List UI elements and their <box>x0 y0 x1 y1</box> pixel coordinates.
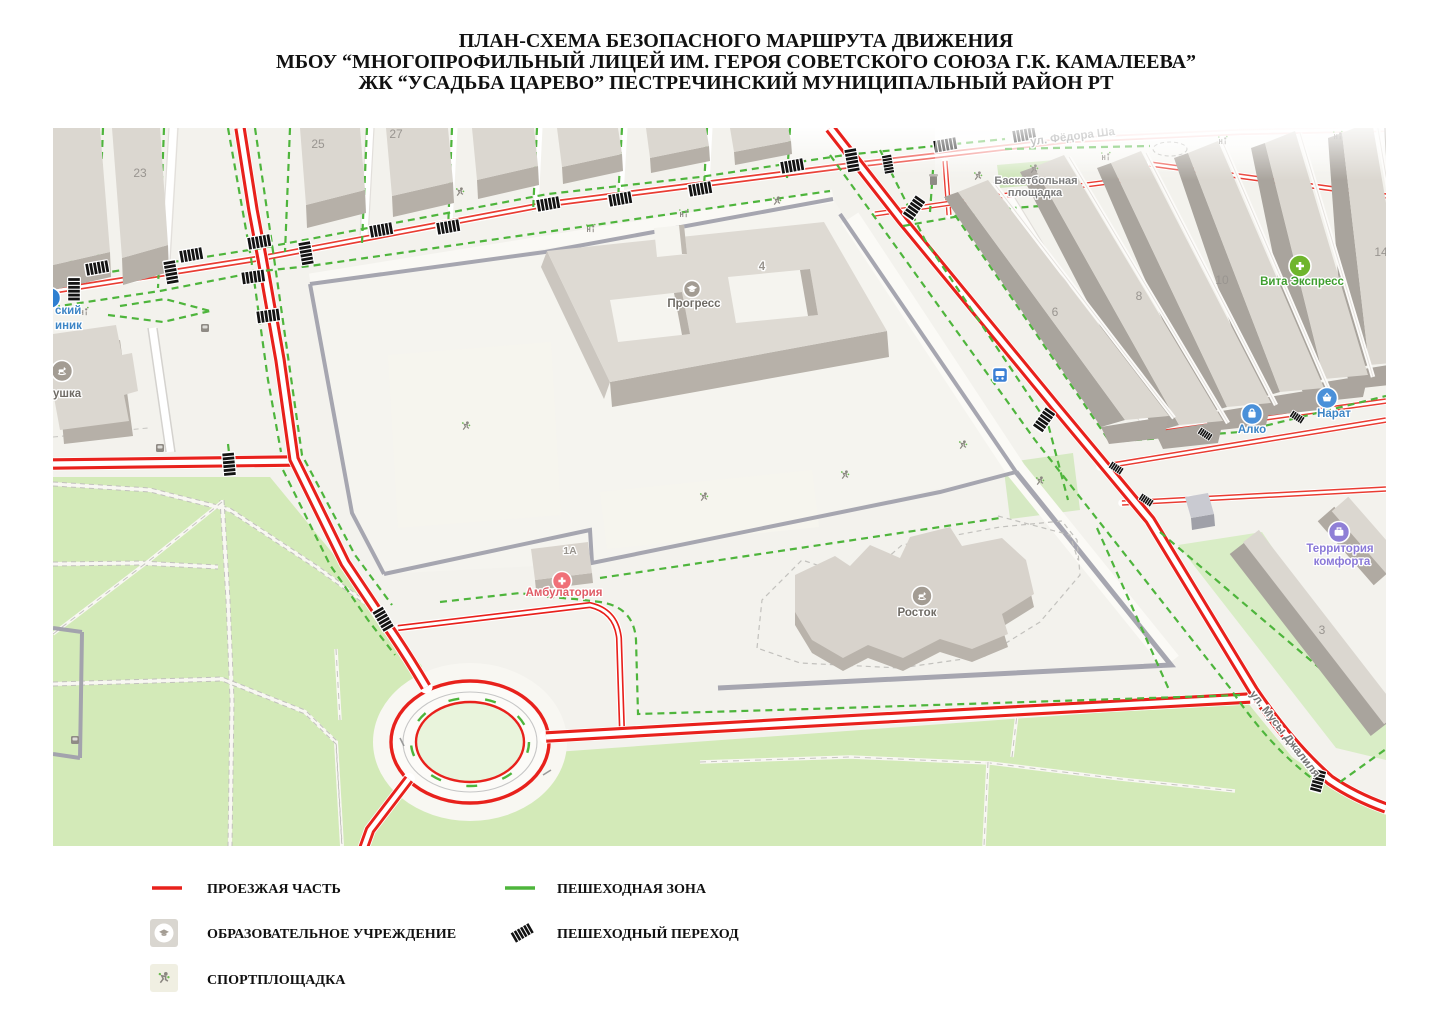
svg-text:ушка: ушка <box>53 388 82 400</box>
svg-text:ПЛАН-СХЕМА БЕЗОПАСНОГО МАРШРУТ: ПЛАН-СХЕМА БЕЗОПАСНОГО МАРШРУТА ДВИЖЕНИЯ <box>459 30 1014 52</box>
svg-text:ПЕШЕХОДНЫЙ ПЕРЕХОД: ПЕШЕХОДНЫЙ ПЕРЕХОД <box>557 925 739 942</box>
svg-text:ПРОЕЗЖАЯ ЧАСТЬ: ПРОЕЗЖАЯ ЧАСТЬ <box>207 881 341 897</box>
svg-text:ОБРАЗОВАТЕЛЬНОЕ УЧРЕЖДЕНИЕ: ОБРАЗОВАТЕЛЬНОЕ УЧРЕЖДЕНИЕ <box>207 926 456 942</box>
svg-text:площадка: площадка <box>1008 187 1063 199</box>
svg-text:МБОУ “МНОГОПРОФИЛЬНЫЙ ЛИЦЕЙ ИМ: МБОУ “МНОГОПРОФИЛЬНЫЙ ЛИЦЕЙ ИМ. ГЕРОЯ СО… <box>276 50 1196 73</box>
svg-text:Росток: Росток <box>898 607 937 619</box>
svg-text:Нарат: Нарат <box>1317 408 1351 420</box>
svg-text:3: 3 <box>1319 623 1326 637</box>
svg-text:27: 27 <box>389 127 403 141</box>
svg-text:Территория: Территория <box>1306 543 1373 555</box>
svg-text:ПЕШЕХОДНАЯ ЗОНА: ПЕШЕХОДНАЯ ЗОНА <box>557 881 707 897</box>
svg-text:ский: ский <box>55 305 81 317</box>
svg-text:10: 10 <box>1215 273 1229 287</box>
svg-text:6: 6 <box>1052 305 1059 319</box>
svg-text:23: 23 <box>133 166 147 180</box>
svg-text:ЖК “УСАДЬБА ЦАРЕВО” ПЕСТРЕЧИНС: ЖК “УСАДЬБА ЦАРЕВО” ПЕСТРЕЧИНСКИЙ МУНИЦИ… <box>359 71 1115 94</box>
svg-text:Алко: Алко <box>1238 424 1266 436</box>
svg-text:4: 4 <box>759 261 766 273</box>
svg-text:8: 8 <box>1136 289 1143 303</box>
svg-text:комфорта: комфорта <box>1314 556 1371 568</box>
svg-text:Прогресс: Прогресс <box>667 298 721 310</box>
svg-text:СПОРТПЛОЩАДКА: СПОРТПЛОЩАДКА <box>207 972 346 988</box>
svg-text:Вита Экспресс: Вита Экспресс <box>1260 276 1344 288</box>
svg-text:иник: иник <box>55 320 82 332</box>
svg-text:14: 14 <box>1374 245 1388 259</box>
svg-text:1А: 1А <box>563 545 577 557</box>
svg-text:Амбулатория: Амбулатория <box>526 587 603 599</box>
svg-text:25: 25 <box>311 137 325 151</box>
